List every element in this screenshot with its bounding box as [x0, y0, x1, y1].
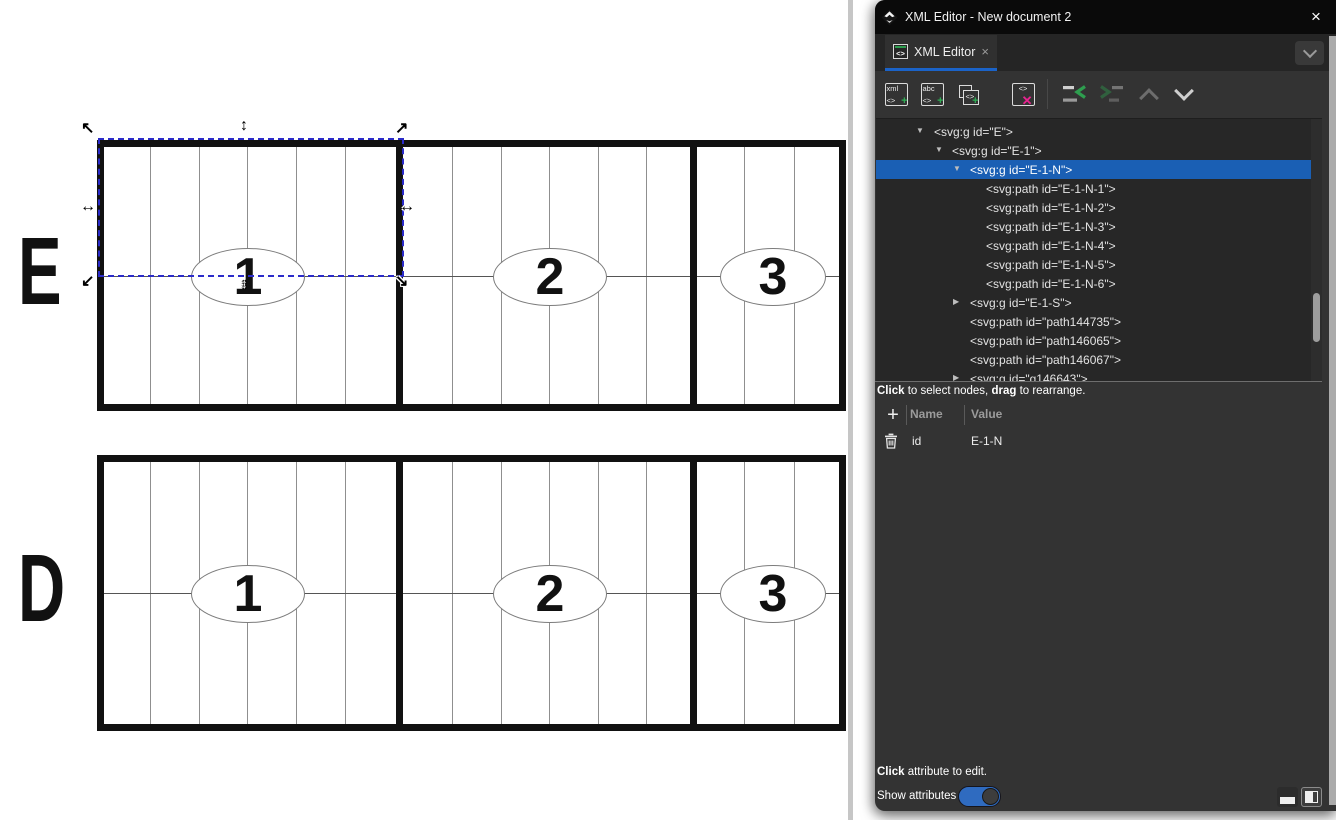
tree-node-2[interactable]: ▼<svg:g id="E-1">	[876, 141, 1311, 160]
tab-list-dropdown-button[interactable]	[1295, 41, 1324, 65]
xml-editor-dialog: XML Editor - New document 2 × <> XML Edi…	[875, 0, 1336, 811]
tree-node-3[interactable]: ▼<svg:g id="E-1-N">	[876, 160, 1311, 179]
duplicate-node-icon: <>+	[957, 83, 980, 106]
tree-hint-text: Click to select nodes, drag to rearrange…	[875, 381, 1322, 401]
section-divider	[396, 462, 403, 724]
section-number: 3	[759, 568, 788, 620]
section-number: 2	[536, 251, 565, 303]
tree-node-11[interactable]: <svg:path id="path144735">	[876, 312, 1311, 331]
scale-handle-bottom-center[interactable]: ↕	[241, 277, 248, 290]
scale-handle-top-right[interactable]: ↗	[395, 121, 408, 137]
section-divider	[690, 462, 697, 724]
tree-node-4[interactable]: <svg:path id="E-1-N-1">	[876, 179, 1311, 198]
tree-scrollbar[interactable]	[1311, 118, 1322, 382]
section-divider	[690, 147, 697, 404]
section-ellipse-E-2[interactable]: 2	[493, 248, 607, 306]
structure-D[interactable]: D123	[97, 455, 846, 731]
attribute-edit-hint: Click attribute to edit.	[877, 766, 987, 778]
move-node-down-button[interactable]	[1170, 80, 1198, 108]
tree-node-label: <svg:path id="E-1-N-3">	[986, 220, 1116, 234]
tree-node-label: <svg:path id="path146067">	[970, 353, 1121, 367]
new-element-node-button[interactable]: xml <> +	[882, 80, 910, 108]
section-ellipse-D-3[interactable]: 3	[720, 565, 826, 623]
structure-label-D[interactable]: D	[18, 541, 65, 637]
chevron-down-icon	[1174, 81, 1194, 101]
tree-node-label: <svg:path id="path146065">	[970, 334, 1121, 348]
dialog-close-button[interactable]: ×	[1304, 5, 1328, 29]
new-element-node-icon: xml <> +	[885, 83, 908, 106]
scale-handle-bottom-right[interactable]: ↘	[395, 274, 408, 290]
layout-horizontal-icon	[1280, 797, 1295, 804]
tree-node-label: <svg:path id="E-1-N-2">	[986, 201, 1116, 215]
attr-value[interactable]: E-1-N	[971, 434, 1002, 448]
tree-node-6[interactable]: <svg:path id="E-1-N-3">	[876, 217, 1311, 236]
tab-close-icon[interactable]: ×	[981, 44, 989, 59]
tab-xml-editor[interactable]: <> XML Editor ×	[885, 35, 997, 71]
canvas-scrollbar[interactable]	[848, 0, 853, 820]
section-ellipse-D-1[interactable]: 1	[191, 565, 305, 623]
attr-value-header: Value	[971, 407, 1002, 421]
scale-handle-top-left[interactable]: ↖	[81, 121, 94, 137]
chevron-down-icon	[1302, 44, 1316, 58]
attr-name[interactable]: id	[912, 434, 921, 448]
section-number: 1	[234, 568, 263, 620]
tree-node-label: <svg:path id="E-1-N-5">	[986, 258, 1116, 272]
tree-node-5[interactable]: <svg:path id="E-1-N-2">	[876, 198, 1311, 217]
delete-node-button[interactable]: <> ✕	[1009, 80, 1037, 108]
toolbar-separator	[1047, 79, 1048, 109]
panel-scrollbar-track[interactable]	[1329, 36, 1336, 805]
dialog-titlebar[interactable]: XML Editor - New document 2 ×	[875, 0, 1336, 34]
attributes-header: + Name Value	[875, 401, 1322, 430]
new-text-node-button[interactable]: abc <> +	[918, 80, 946, 108]
tree-node-label: <svg:path id="path144735">	[970, 315, 1121, 329]
scale-handle-right[interactable]: ↔	[399, 199, 415, 215]
structure-label-E[interactable]: E	[18, 224, 62, 320]
indent-node-icon	[1099, 84, 1124, 104]
dialog-title: XML Editor - New document 2	[905, 10, 1071, 24]
xml-editor-tab-icon: <>	[893, 44, 908, 59]
delete-node-icon: <> ✕	[1012, 83, 1035, 106]
layout-vertical-button[interactable]	[1301, 787, 1322, 807]
tab-label: XML Editor	[914, 45, 975, 59]
tree-node-label: <svg:path id="E-1-N-4">	[986, 239, 1116, 253]
tree-scrollbar-thumb[interactable]	[1313, 293, 1320, 342]
scale-handle-bottom-left[interactable]: ↙	[81, 274, 94, 290]
tree-node-10[interactable]: ▶<svg:g id="E-1-S">	[876, 293, 1311, 312]
section-ellipse-D-2[interactable]: 2	[493, 565, 607, 623]
scale-handle-left[interactable]: ↔	[80, 199, 96, 215]
indent-node-button[interactable]	[1097, 80, 1125, 108]
attr-name-header: Name	[910, 407, 943, 421]
tree-node-1[interactable]: ▼<svg:g id="E">	[876, 122, 1311, 141]
expander-closed-icon[interactable]: ▶	[953, 298, 959, 306]
tree-node-label: <svg:g id="E-1-N">	[970, 163, 1072, 177]
section-ellipse-E-3[interactable]: 3	[720, 248, 826, 306]
tree-node-label: <svg:path id="E-1-N-1">	[986, 182, 1116, 196]
section-number: 3	[759, 251, 788, 303]
add-attribute-button[interactable]: +	[881, 403, 905, 427]
tree-node-label: <svg:g id="E-1">	[952, 144, 1042, 158]
unindent-node-icon	[1062, 84, 1087, 104]
attribute-row[interactable]: id E-1-N	[875, 429, 1322, 455]
unindent-node-button[interactable]	[1060, 80, 1088, 108]
inkscape-canvas[interactable]: E123D123 ↖ ↕ ↗ ↔ ↔ ↙ ↕ ↘	[0, 0, 875, 820]
tree-node-7[interactable]: <svg:path id="E-1-N-4">	[876, 236, 1311, 255]
tree-node-9[interactable]: <svg:path id="E-1-N-6">	[876, 274, 1311, 293]
toggle-knob	[982, 788, 999, 805]
expander-open-icon[interactable]: ▼	[953, 165, 961, 173]
move-node-up-button[interactable]	[1135, 80, 1163, 108]
delete-attribute-icon[interactable]	[884, 433, 898, 449]
layout-vertical-icon	[1305, 791, 1312, 803]
xml-node-tree[interactable]: ▼<svg:g id="E">▼<svg:g id="E-1">▼<svg:g …	[876, 118, 1311, 382]
selection-bbox-dashed	[98, 138, 404, 277]
show-attributes-label: Show attributes	[877, 790, 956, 802]
show-attributes-toggle[interactable]	[958, 786, 1001, 807]
scale-handle-top-center[interactable]: ↕	[240, 118, 248, 134]
xml-toolbar: xml <> + abc <> + <>+ <> ✕	[875, 71, 1336, 118]
tree-node-12[interactable]: <svg:path id="path146065">	[876, 331, 1311, 350]
tree-node-8[interactable]: <svg:path id="E-1-N-5">	[876, 255, 1311, 274]
section-number: 2	[536, 568, 565, 620]
tree-node-13[interactable]: <svg:path id="path146067">	[876, 350, 1311, 369]
tree-node-label: <svg:g id="E">	[934, 125, 1013, 139]
new-text-node-icon: abc <> +	[921, 83, 944, 106]
tree-node-label: <svg:path id="E-1-N-6">	[986, 277, 1116, 291]
inkscape-logo-icon	[881, 9, 898, 26]
tree-node-label: <svg:g id="E-1-S">	[970, 296, 1072, 310]
expander-open-icon[interactable]: ▼	[935, 146, 943, 154]
expander-open-icon[interactable]: ▼	[916, 127, 924, 135]
chevron-up-icon	[1139, 88, 1159, 108]
duplicate-node-button[interactable]: <>+	[954, 80, 982, 108]
layout-horizontal-button[interactable]	[1277, 787, 1298, 807]
dialog-tabbar: <> XML Editor ×	[875, 34, 1336, 72]
